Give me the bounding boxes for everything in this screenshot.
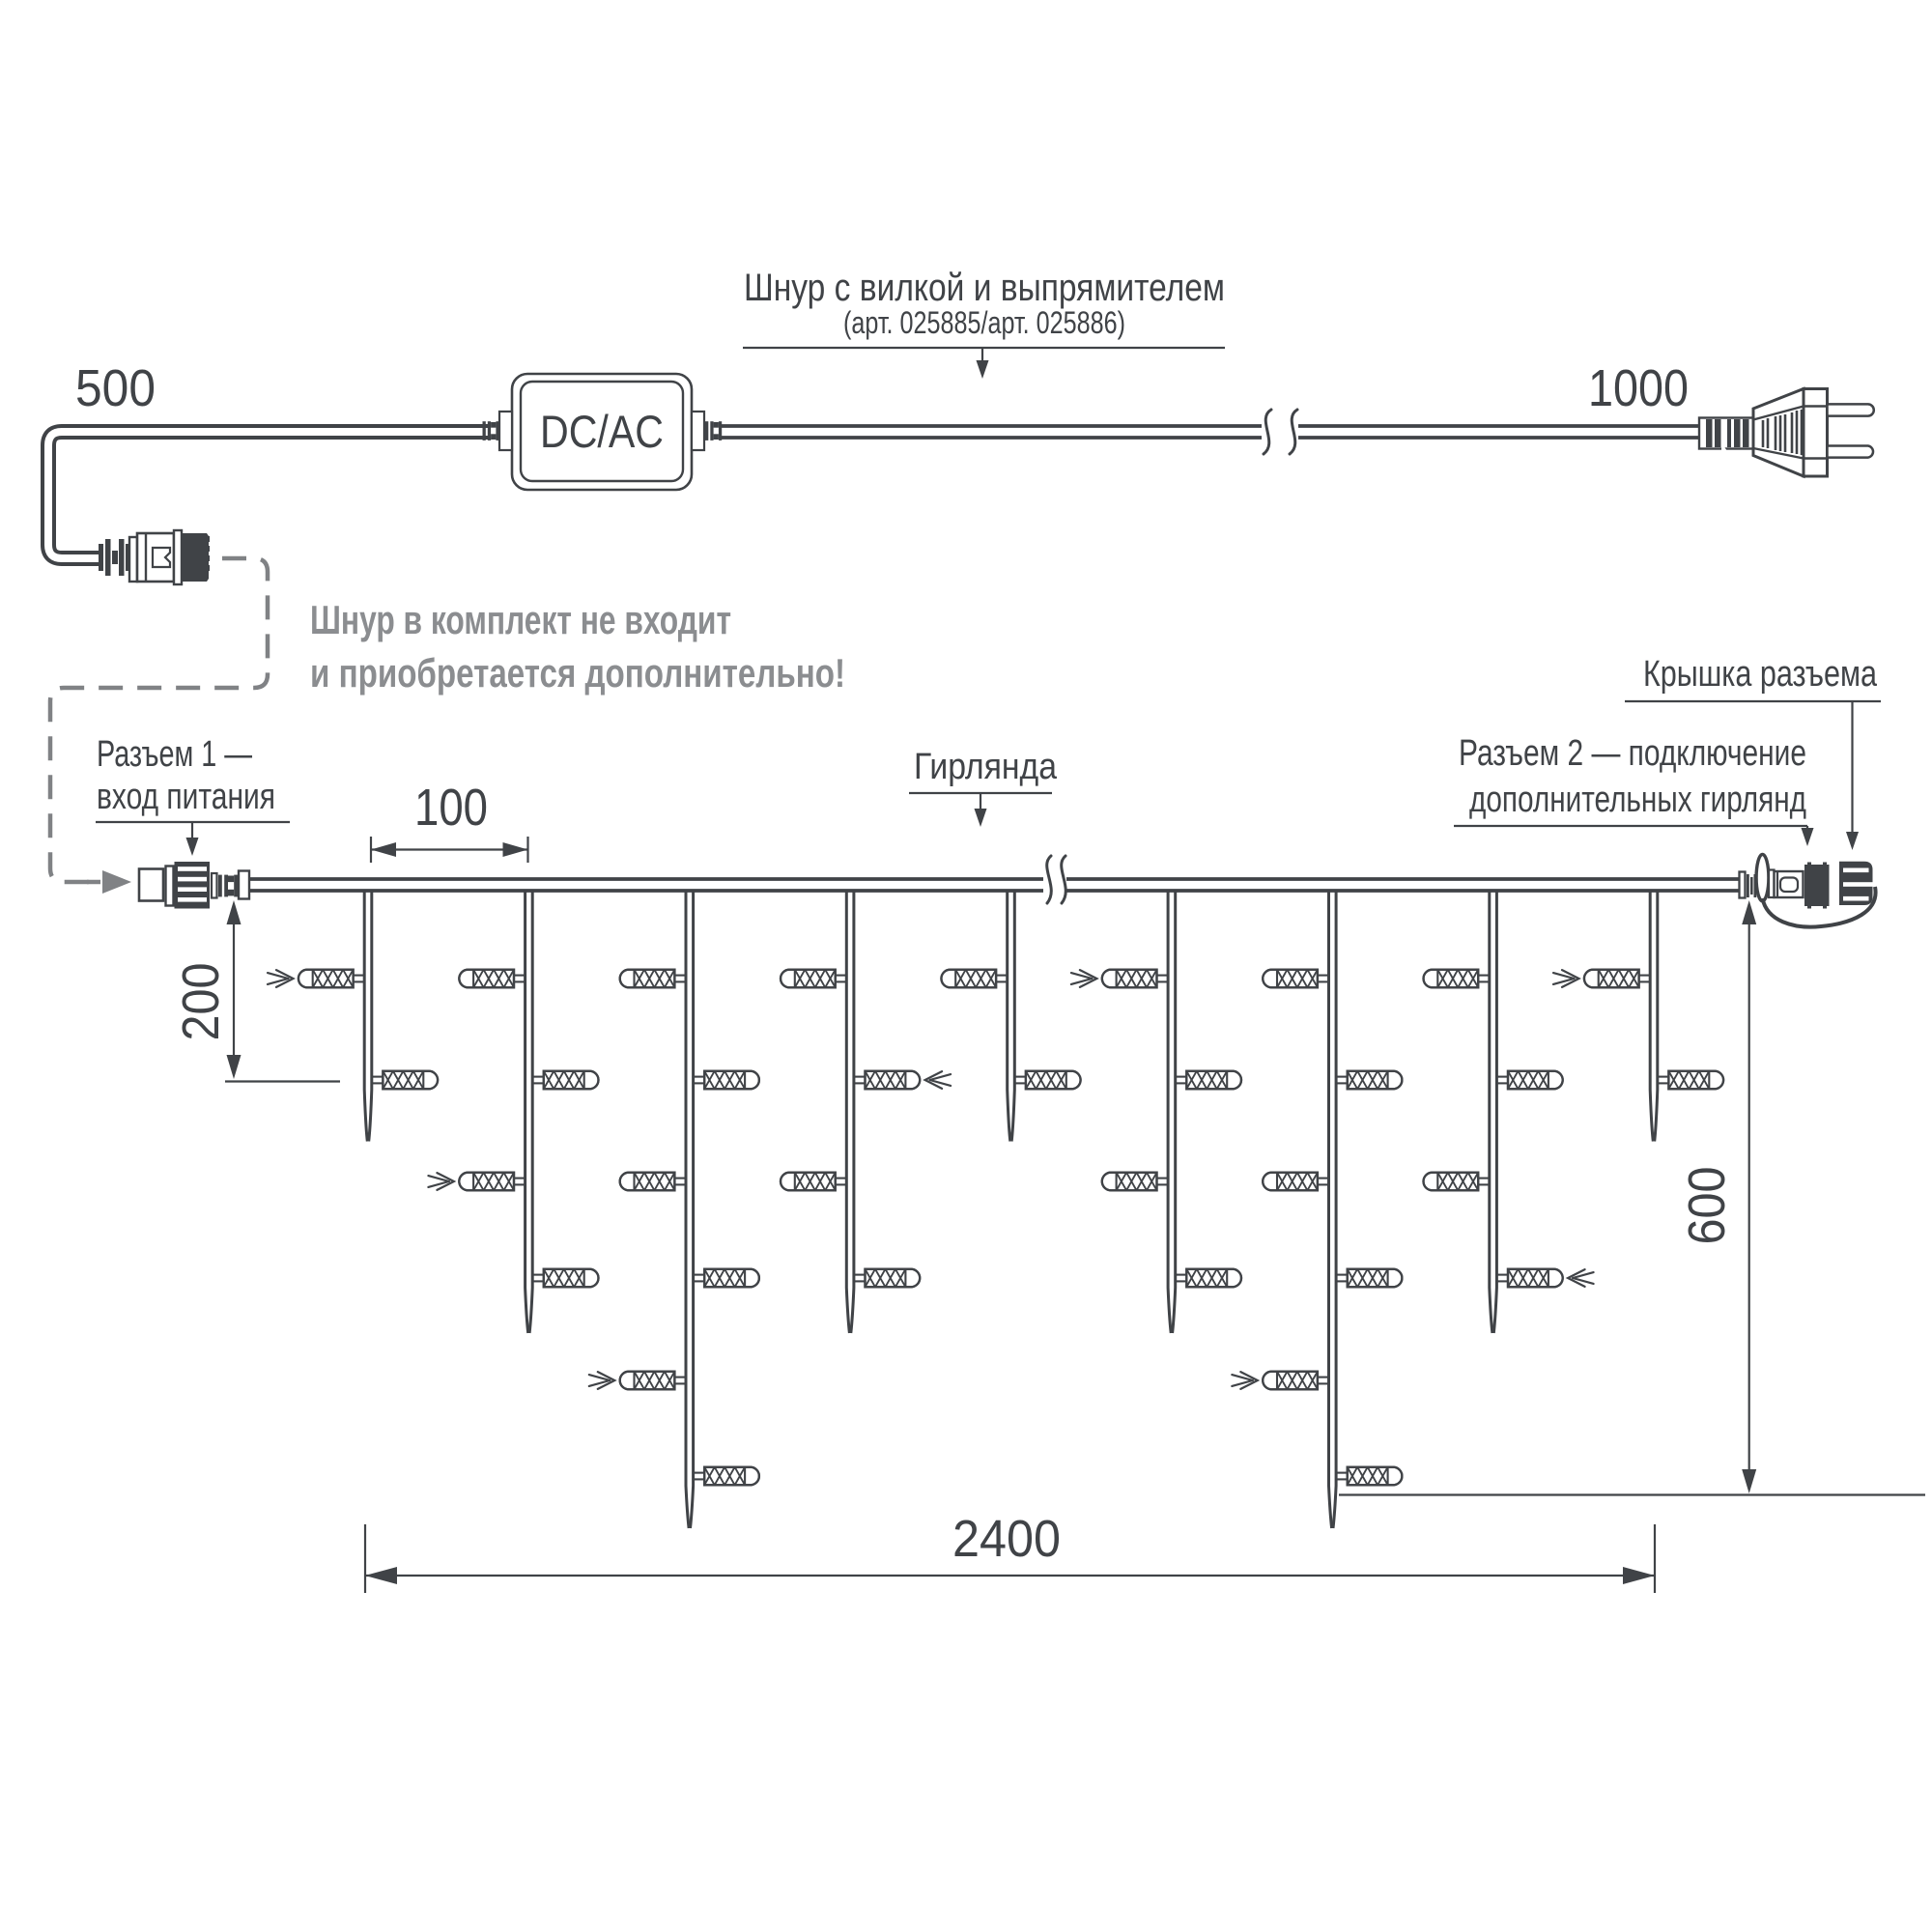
svg-text:Шнур в комплект не входит: Шнур в комплект не входит (310, 597, 731, 642)
svg-text:Шнур с вилкой и выпрямителем: Шнур с вилкой и выпрямителем (744, 267, 1225, 309)
svg-text:Гирлянда: Гирлянда (914, 747, 1058, 787)
svg-text:1000: 1000 (1588, 359, 1689, 417)
svg-text:DC/AC: DC/AC (540, 406, 664, 457)
svg-text:500: 500 (75, 359, 156, 417)
svg-text:дополнительных гирлянд: дополнительных гирлянд (1469, 780, 1806, 820)
svg-text:100: 100 (414, 779, 488, 837)
svg-text:Разъем 1 —: Разъем 1 — (97, 734, 252, 775)
svg-text:Разъем 2 — подключение: Разъем 2 — подключение (1459, 733, 1806, 774)
svg-text:600: 600 (1678, 1167, 1736, 1245)
svg-text:(арт. 025885/арт. 025886): (арт. 025885/арт. 025886) (843, 305, 1125, 340)
svg-text:2400: 2400 (952, 1510, 1061, 1568)
svg-text:Крышка разъема: Крышка разъема (1643, 654, 1878, 695)
svg-text:и приобретается дополнительно!: и приобретается дополнительно! (310, 650, 845, 696)
svg-text:вход питания: вход питания (97, 777, 275, 817)
svg-text:200: 200 (172, 963, 230, 1041)
